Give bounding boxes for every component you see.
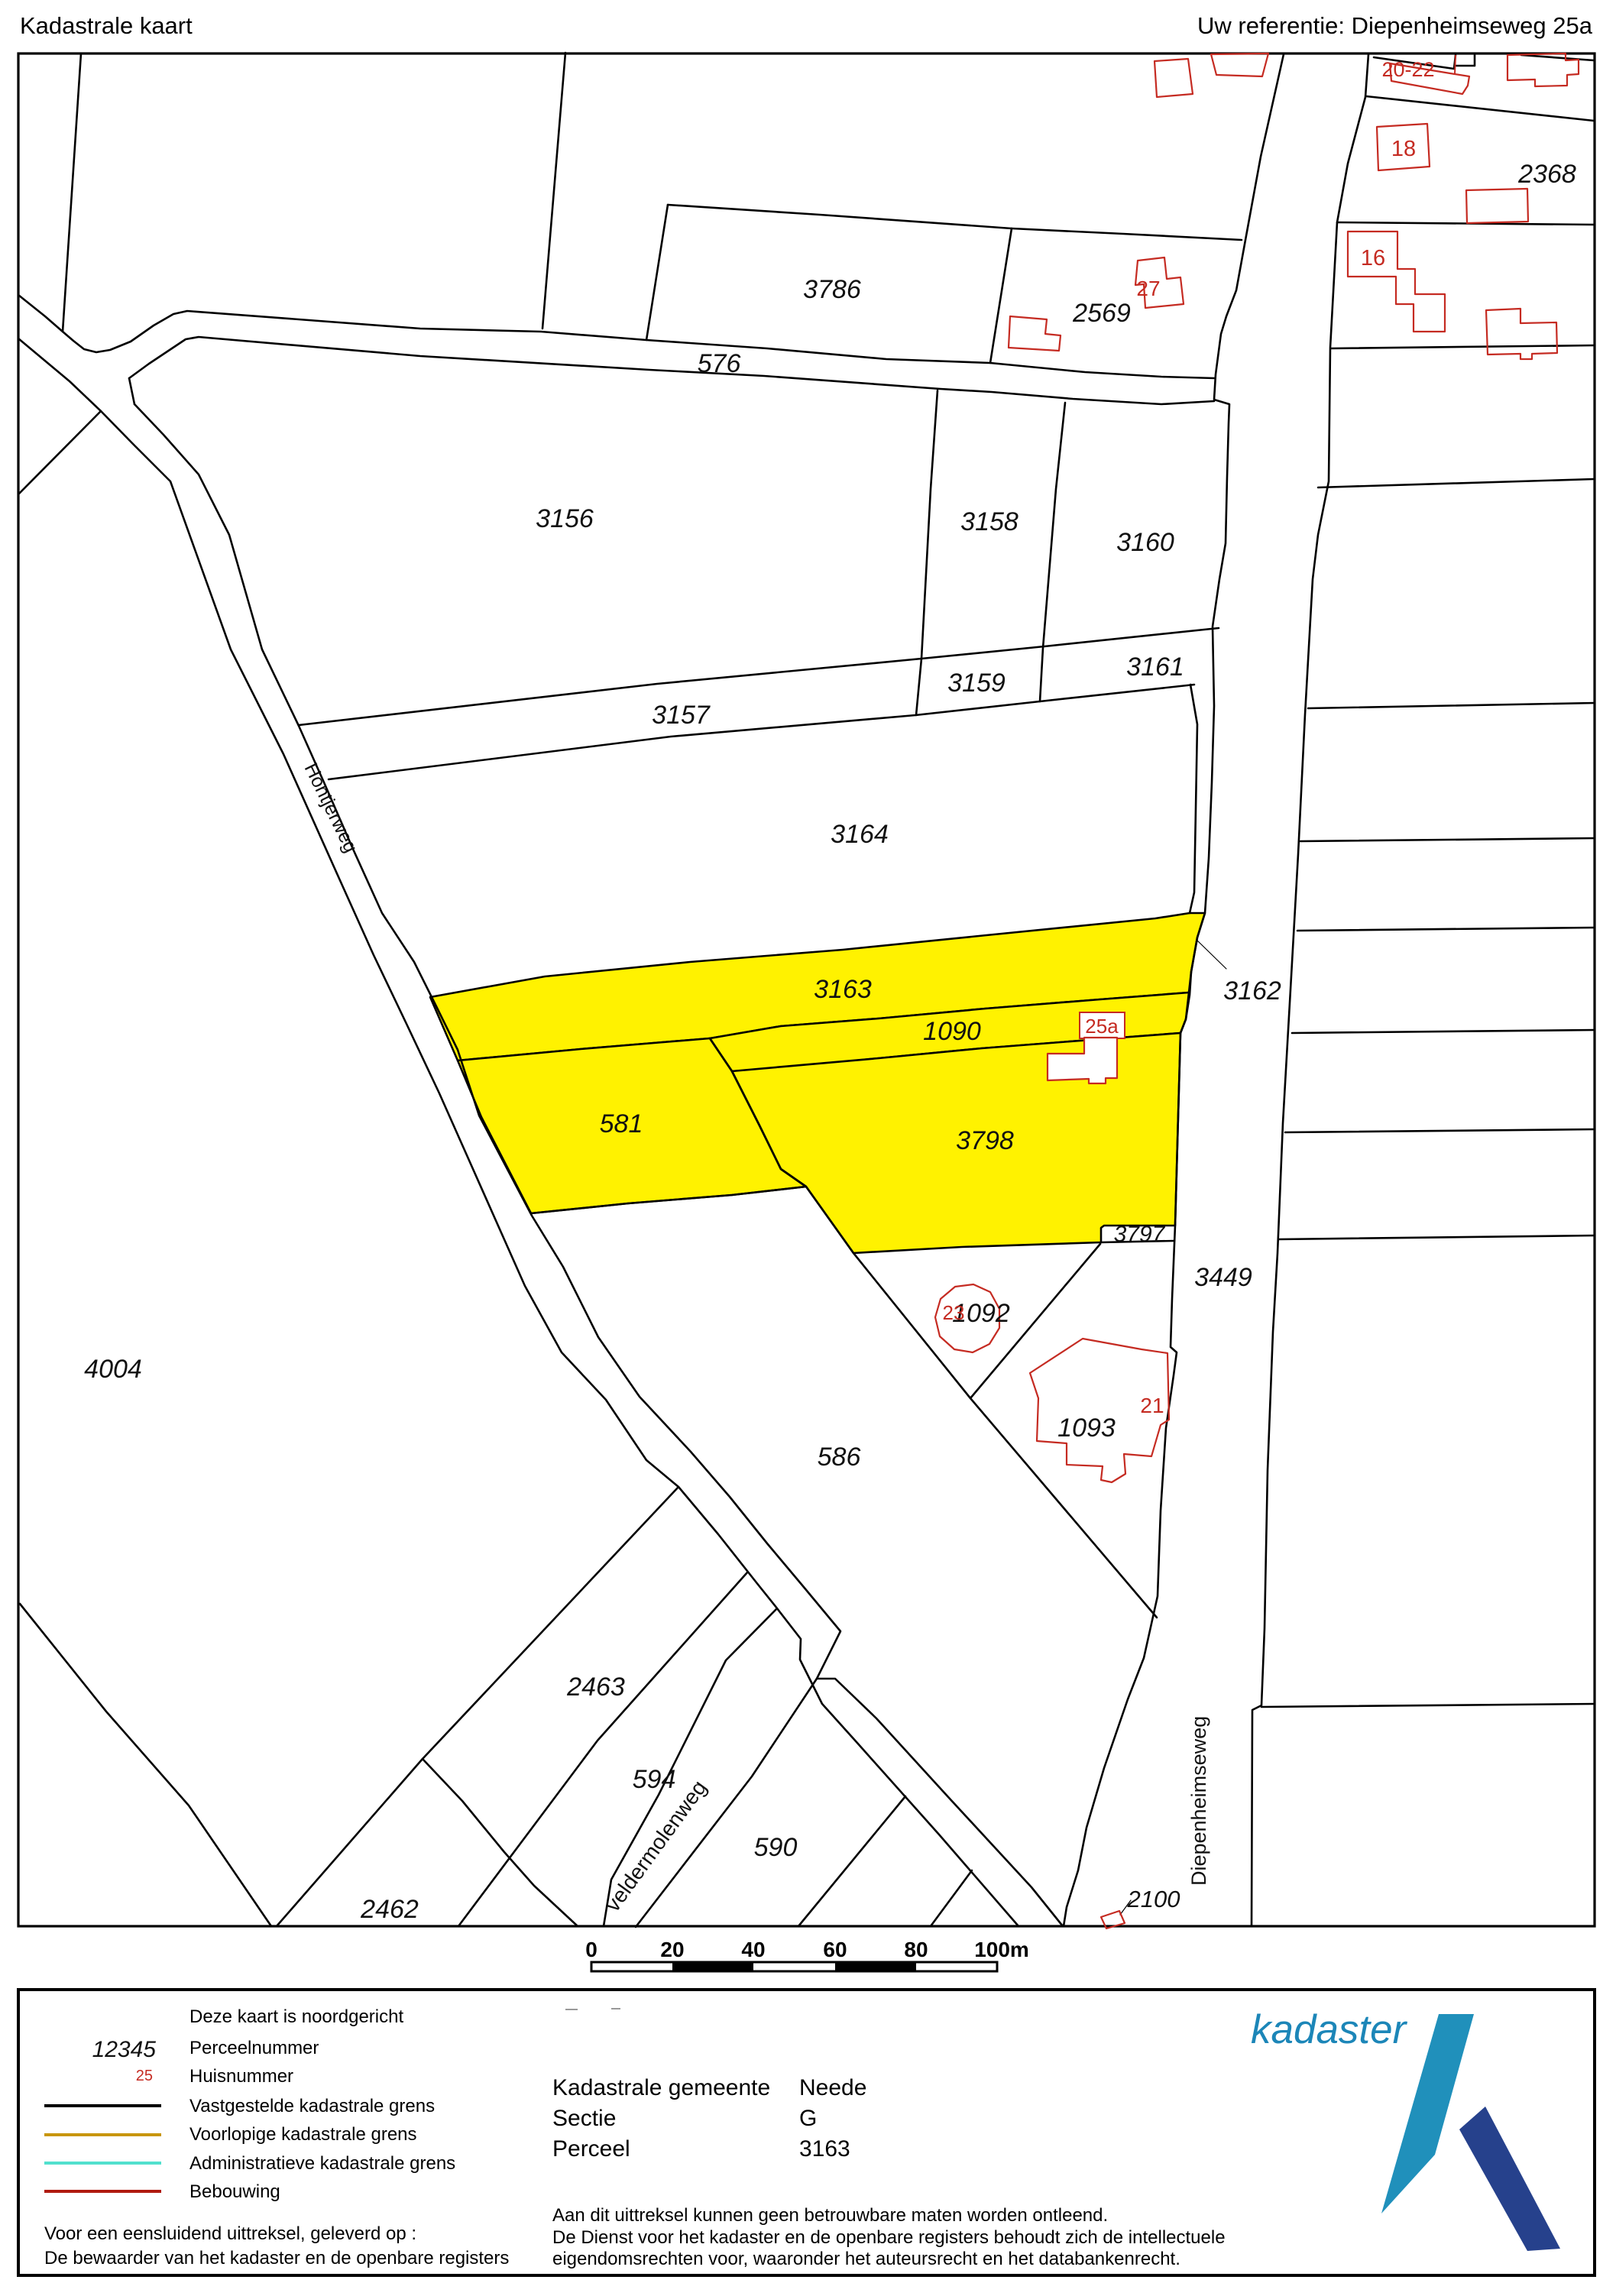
svg-text:2100: 2100 [1127,1886,1180,1912]
svg-text:3160: 3160 [1116,528,1174,557]
svg-text:Voorlopige kadastrale grens: Voorlopige kadastrale grens [189,2124,417,2145]
svg-text:Kadastrale kaart: Kadastrale kaart [20,12,193,39]
svg-text:2368: 2368 [1517,160,1576,189]
svg-text:40: 40 [741,1938,765,1961]
svg-text:3158: 3158 [960,507,1019,536]
svg-text:16: 16 [1361,246,1385,270]
svg-text:Vastgestelde kadastrale grens: Vastgestelde kadastrale grens [189,2096,435,2116]
svg-text:4004: 4004 [84,1355,142,1384]
svg-text:590: 590 [754,1833,798,1862]
svg-text:eigendomsrechten voor, waarond: eigendomsrechten voor, waaronder het aut… [552,2249,1180,2269]
svg-text:2462: 2462 [360,1895,419,1924]
svg-text:G: G [799,2106,817,2131]
svg-text:Sectie: Sectie [552,2106,616,2131]
svg-text:586: 586 [818,1443,861,1472]
svg-text:2569: 2569 [1072,299,1131,328]
svg-text:Voor een eensluidend uittrekse: Voor een eensluidend uittreksel, gelever… [44,2223,416,2244]
svg-text:kadaster: kadaster [1251,2007,1408,2052]
svg-text:3157: 3157 [652,701,711,730]
svg-text:25: 25 [136,2068,153,2084]
svg-text:27: 27 [1136,277,1160,300]
svg-text:581: 581 [600,1109,643,1138]
svg-text:3797: 3797 [1114,1222,1166,1247]
svg-text:De bewaarder van het kadaster: De bewaarder van het kadaster en de open… [44,2248,509,2268]
svg-text:Administratieve kadastrale gre: Administratieve kadastrale grens [189,2153,455,2174]
svg-text:25a: 25a [1085,1015,1119,1038]
svg-text:23: 23 [943,1301,965,1324]
svg-text:0: 0 [585,1938,597,1961]
svg-text:80: 80 [904,1938,928,1961]
svg-text:Aan dit uittreksel kunnen geen: Aan dit uittreksel kunnen geen betrouwba… [552,2205,1108,2226]
svg-text:12345: 12345 [92,2037,157,2062]
svg-text:Bebouwing: Bebouwing [189,2181,280,2202]
svg-text:3164: 3164 [831,820,889,849]
svg-text:20: 20 [660,1938,684,1961]
svg-text:De Dienst voor het kadaster en: De Dienst voor het kadaster en de openba… [552,2227,1226,2248]
svg-text:60: 60 [823,1938,847,1961]
svg-text:18: 18 [1391,137,1416,161]
svg-text:21: 21 [1140,1394,1164,1417]
svg-text:3162: 3162 [1223,976,1281,1006]
svg-text:Diepenheimseweg: Diepenheimseweg [1187,1716,1210,1886]
svg-text:1090: 1090 [923,1017,981,1046]
svg-text:Uw referentie: Diepenheimseweg: Uw referentie: Diepenheimseweg 25a [1197,12,1593,39]
svg-text:Perceelnummer: Perceelnummer [189,2038,319,2058]
svg-text:3161: 3161 [1126,653,1184,682]
svg-text:594: 594 [633,1765,676,1794]
svg-text:3798: 3798 [956,1126,1014,1155]
svg-text:20-22: 20-22 [1381,58,1434,81]
svg-text:Kadastrale gemeente: Kadastrale gemeente [552,2075,770,2100]
svg-text:Huisnummer: Huisnummer [189,2066,293,2087]
svg-text:3449: 3449 [1194,1263,1252,1292]
svg-text:100m: 100m [974,1938,1029,1961]
svg-text:2463: 2463 [566,1673,625,1702]
svg-text:3786: 3786 [803,275,861,304]
svg-text:Deze kaart is noordgericht: Deze kaart is noordgericht [189,2006,403,2027]
svg-text:3156: 3156 [536,504,594,533]
svg-text:3159: 3159 [947,669,1006,698]
svg-text:3163: 3163 [799,2136,850,2162]
svg-text:1093: 1093 [1057,1414,1116,1443]
svg-text:576: 576 [698,349,741,378]
svg-text:Neede: Neede [799,2075,866,2100]
svg-text:Perceel: Perceel [552,2136,630,2162]
svg-text:3163: 3163 [814,975,872,1004]
